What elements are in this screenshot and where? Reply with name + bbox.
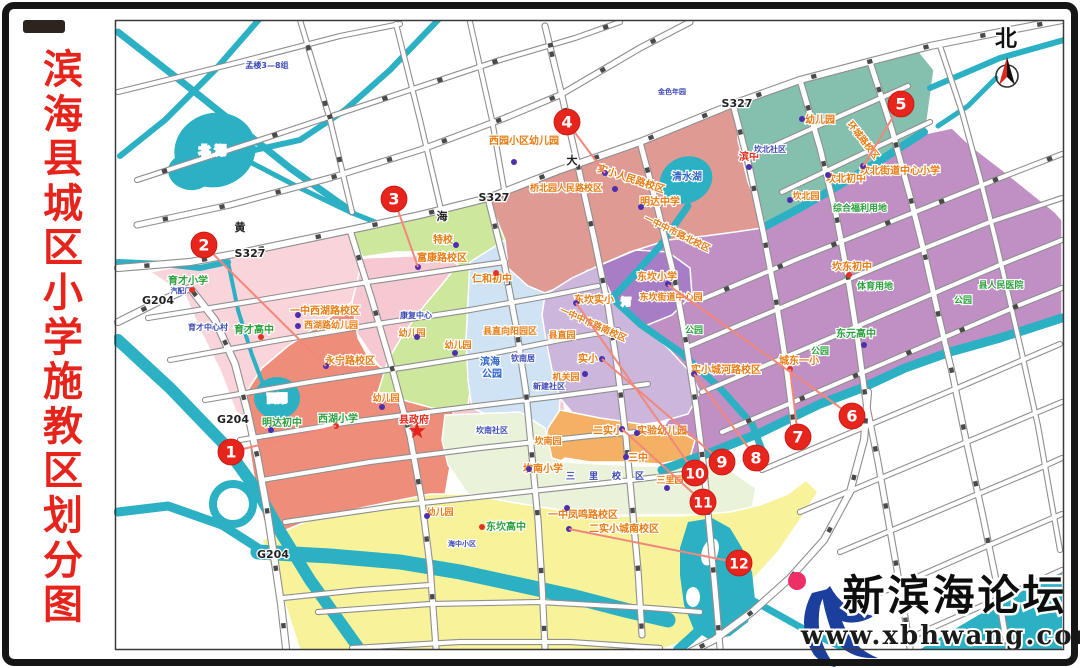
title-char: 城 [13, 182, 113, 226]
map-label: 孟楼3—8组 [245, 60, 288, 70]
road-segment-tick [692, 394, 697, 400]
district-marker-12: 12 [726, 550, 752, 576]
district-marker-6: 6 [839, 403, 865, 429]
title-top-bar [23, 20, 65, 33]
road-segment-tick [635, 565, 640, 571]
school-dot [479, 524, 485, 530]
school-dot [564, 505, 570, 511]
road-segment-tick [862, 389, 867, 395]
school-dot [799, 116, 805, 122]
map-label: 桥北园人民路校区 [530, 182, 602, 194]
road-segment-tick [716, 625, 721, 631]
map-label: 育才中心村 [188, 322, 228, 332]
school-dot [638, 204, 644, 210]
road-segment-tick [529, 452, 534, 458]
school-dot [846, 272, 852, 278]
map-label: 幼儿园 [444, 339, 471, 351]
marker-number: 9 [716, 453, 727, 472]
road-segment-tick [763, 242, 768, 248]
district-marker-9: 9 [709, 449, 735, 475]
map-label: 一中凤鸣路校区 [548, 508, 618, 521]
title-char: 滨 [13, 48, 113, 92]
marker-number: 12 [729, 557, 748, 573]
map-label: 海中小区 [448, 539, 476, 548]
road-segment-tick [893, 560, 898, 566]
map-label: 仁和初中 [472, 272, 512, 285]
map-label: 二实小城南校区 [589, 522, 659, 535]
title-char: 教 [13, 405, 113, 449]
school-dot [623, 454, 629, 460]
title-char: 县 [13, 137, 113, 181]
road-segment-tick [516, 337, 521, 343]
road-segment-tick [683, 337, 688, 343]
map-label: 坎东初中 [832, 260, 872, 273]
map-label: 金色年园 [657, 87, 686, 96]
road [396, 24, 442, 214]
school-dot [493, 270, 499, 276]
marker-number: 11 [693, 496, 712, 512]
map-label: 汽配厂 [171, 286, 192, 295]
road-segment-tick [835, 217, 840, 223]
road-segment-tick [639, 623, 644, 628]
map-label: 坎北社区 [754, 144, 786, 154]
road-segment-tick [144, 263, 150, 268]
marker-number: 3 [388, 190, 399, 209]
road-segment-tick [430, 594, 435, 600]
map-label: 滨海 [480, 355, 500, 368]
district-marker-10: 10 [682, 460, 708, 486]
marker-number: 7 [792, 428, 803, 447]
map-label: 坎南园 [534, 435, 561, 447]
road-segment-tick [535, 510, 540, 516]
road-segment-tick [790, 414, 795, 420]
marker-number: 4 [561, 113, 572, 132]
map-label: 清水湖 [672, 170, 702, 183]
road-segment-tick [700, 452, 705, 458]
marker-number: 5 [895, 95, 906, 114]
compass-needle-black [1007, 57, 1015, 85]
school-dot [664, 485, 670, 491]
district-marker-1: 1 [218, 439, 244, 465]
title-char: 学 [13, 316, 113, 360]
road [470, 22, 505, 195]
school-dot [612, 186, 618, 192]
road-segment-tick [883, 503, 888, 509]
city-map-canvas: S327S327S327G204G204G204黄海大北湖西湖清水湖河西园小区幼… [0, 0, 1080, 668]
map-label: 实小 [578, 352, 598, 365]
school-dot [634, 430, 640, 436]
map-label: 体育用地 [857, 280, 893, 292]
title-char: 施 [13, 360, 113, 404]
map-label: 公园 [954, 295, 972, 306]
district-marker-2: 2 [191, 232, 217, 258]
title-char: 海 [13, 93, 113, 137]
road-segment-tick [711, 567, 716, 573]
marker-number: 1 [225, 443, 236, 462]
road-label: S327 [479, 191, 510, 204]
school-dot [825, 172, 831, 178]
school-dot [268, 427, 274, 433]
north-label: 北 [995, 27, 1017, 52]
map-label: 三中 [628, 451, 648, 464]
school-dot [452, 350, 458, 356]
title-char: 图 [13, 583, 113, 627]
title-char: 区 [13, 226, 113, 270]
map-label: 西湖路幼儿园 [304, 319, 358, 331]
road-segment-tick [281, 623, 286, 629]
title-char: 分 [13, 539, 113, 583]
road-segment-tick [265, 508, 270, 514]
road-segment-tick [416, 479, 421, 485]
road-segment-tick [273, 565, 278, 571]
map-label: 西湖 [267, 392, 287, 405]
map-label: 康复中心 [400, 310, 432, 320]
school-dot [379, 404, 385, 410]
map-label: 东坎街道中心园 [639, 291, 702, 303]
school-dot [189, 287, 195, 293]
map-label: 育才高中 [234, 323, 274, 336]
school-dot [414, 334, 420, 340]
district-marker-7: 7 [785, 424, 811, 450]
map-label: 公园 [685, 325, 703, 336]
road-segment-tick [539, 568, 544, 573]
watermark-site-url: www.xbhwang.com [800, 621, 1080, 651]
road-label: G204 [257, 548, 289, 561]
road-segment-tick [630, 508, 635, 514]
map-label: 西园小区幼儿园 [489, 134, 559, 147]
marker-number: 6 [846, 407, 857, 426]
map-label: 东坎实小 [574, 293, 614, 306]
road-label: 黄 [235, 220, 246, 234]
school-dot [295, 312, 301, 318]
road-label: G204 [217, 413, 249, 426]
map-label: 明达中学 [640, 195, 680, 208]
watermark: 新滨海论坛www.xbhwang.com [788, 571, 1080, 667]
map-label: 公园 [482, 368, 502, 380]
map-label: 东坎小学 [637, 270, 677, 283]
map-label: 幼儿园 [805, 113, 835, 126]
map-label: 县政府 [399, 413, 429, 426]
compass-needle-red [999, 57, 1007, 85]
map-label: 综合福利用地 [833, 202, 887, 214]
map-label: 西湖小学 [318, 412, 358, 425]
marker-number: 8 [750, 449, 761, 468]
district-marker-4: 4 [554, 109, 580, 135]
school-dot [861, 342, 867, 348]
district-marker-5: 5 [888, 91, 914, 117]
map-label: 坎北园 [792, 190, 819, 202]
map-label: 北湖 [199, 143, 231, 157]
map-poster: S327S327S327G204G204G204黄海大北湖西湖清水湖河西园小区幼… [0, 0, 1080, 668]
map-label: 三里校区 [566, 470, 658, 482]
road [118, 24, 400, 92]
school-dot [511, 159, 517, 165]
title-char: 小 [13, 271, 113, 315]
map-label: 新建社区 [533, 381, 565, 391]
map-label: 富康路校区 [417, 251, 467, 264]
road-label: S327 [235, 247, 266, 260]
road-segment-tick [542, 626, 547, 631]
district-marker-3: 3 [381, 186, 407, 212]
map-label: 城东一小 [779, 354, 819, 367]
marker-number: 10 [685, 467, 705, 483]
school-dot [453, 242, 459, 248]
marker-number: 2 [198, 236, 209, 255]
map-label: 县人民医院 [978, 279, 1023, 291]
road-label: 大 [567, 153, 578, 167]
map-label: 坎北街道中心小学 [860, 164, 940, 177]
district-marker-11: 11 [690, 489, 716, 515]
watermark-site-name: 新滨海论坛 [842, 571, 1067, 620]
map-label: 幼儿园 [372, 392, 399, 404]
map-label: 明达初中 [262, 416, 302, 429]
school-dot [424, 513, 430, 519]
map-label: 二实小 [593, 424, 623, 437]
title-char: 区 [13, 449, 113, 493]
canal-ring-junction [213, 484, 253, 524]
map-label: 钦南居 [511, 353, 535, 363]
road-segment-tick [774, 299, 779, 305]
logo-dot [788, 572, 806, 590]
school-dot [295, 323, 301, 329]
school-dot [746, 164, 752, 170]
map-label: 幼儿园 [426, 506, 453, 518]
school-dot [582, 371, 588, 377]
school-dot [787, 197, 793, 203]
map-label: 育才小学 [168, 274, 208, 287]
map-label: 永宁路校区 [324, 354, 375, 367]
road-segment-tick [618, 392, 623, 398]
road [840, 458, 1062, 552]
road-label: S327 [722, 97, 753, 110]
map-label: 特校 [433, 233, 454, 246]
title-strip: 滨海县城区小学施教区划分图 [13, 12, 113, 656]
map-label: 实小城河路校区 [691, 363, 761, 376]
school-dot [258, 334, 264, 340]
pond-island [686, 587, 700, 607]
map-label: 东坎高中 [486, 520, 526, 533]
map-label: 东元高中 [836, 327, 876, 340]
road-label: 海 [437, 209, 448, 223]
district-marker-8: 8 [743, 445, 769, 471]
road-segment-tick [524, 394, 529, 400]
road-segment-tick [424, 536, 429, 542]
map-label: 县直园 [548, 329, 575, 341]
map-label: 县直向阳园区 [483, 325, 537, 337]
map-label: 坎南社区 [476, 425, 508, 435]
road-label: G204 [142, 294, 174, 307]
school-dot [526, 466, 532, 472]
map-label: 河 [621, 296, 630, 308]
title-char: 划 [13, 494, 113, 538]
map-label: 幼儿园 [398, 327, 425, 339]
